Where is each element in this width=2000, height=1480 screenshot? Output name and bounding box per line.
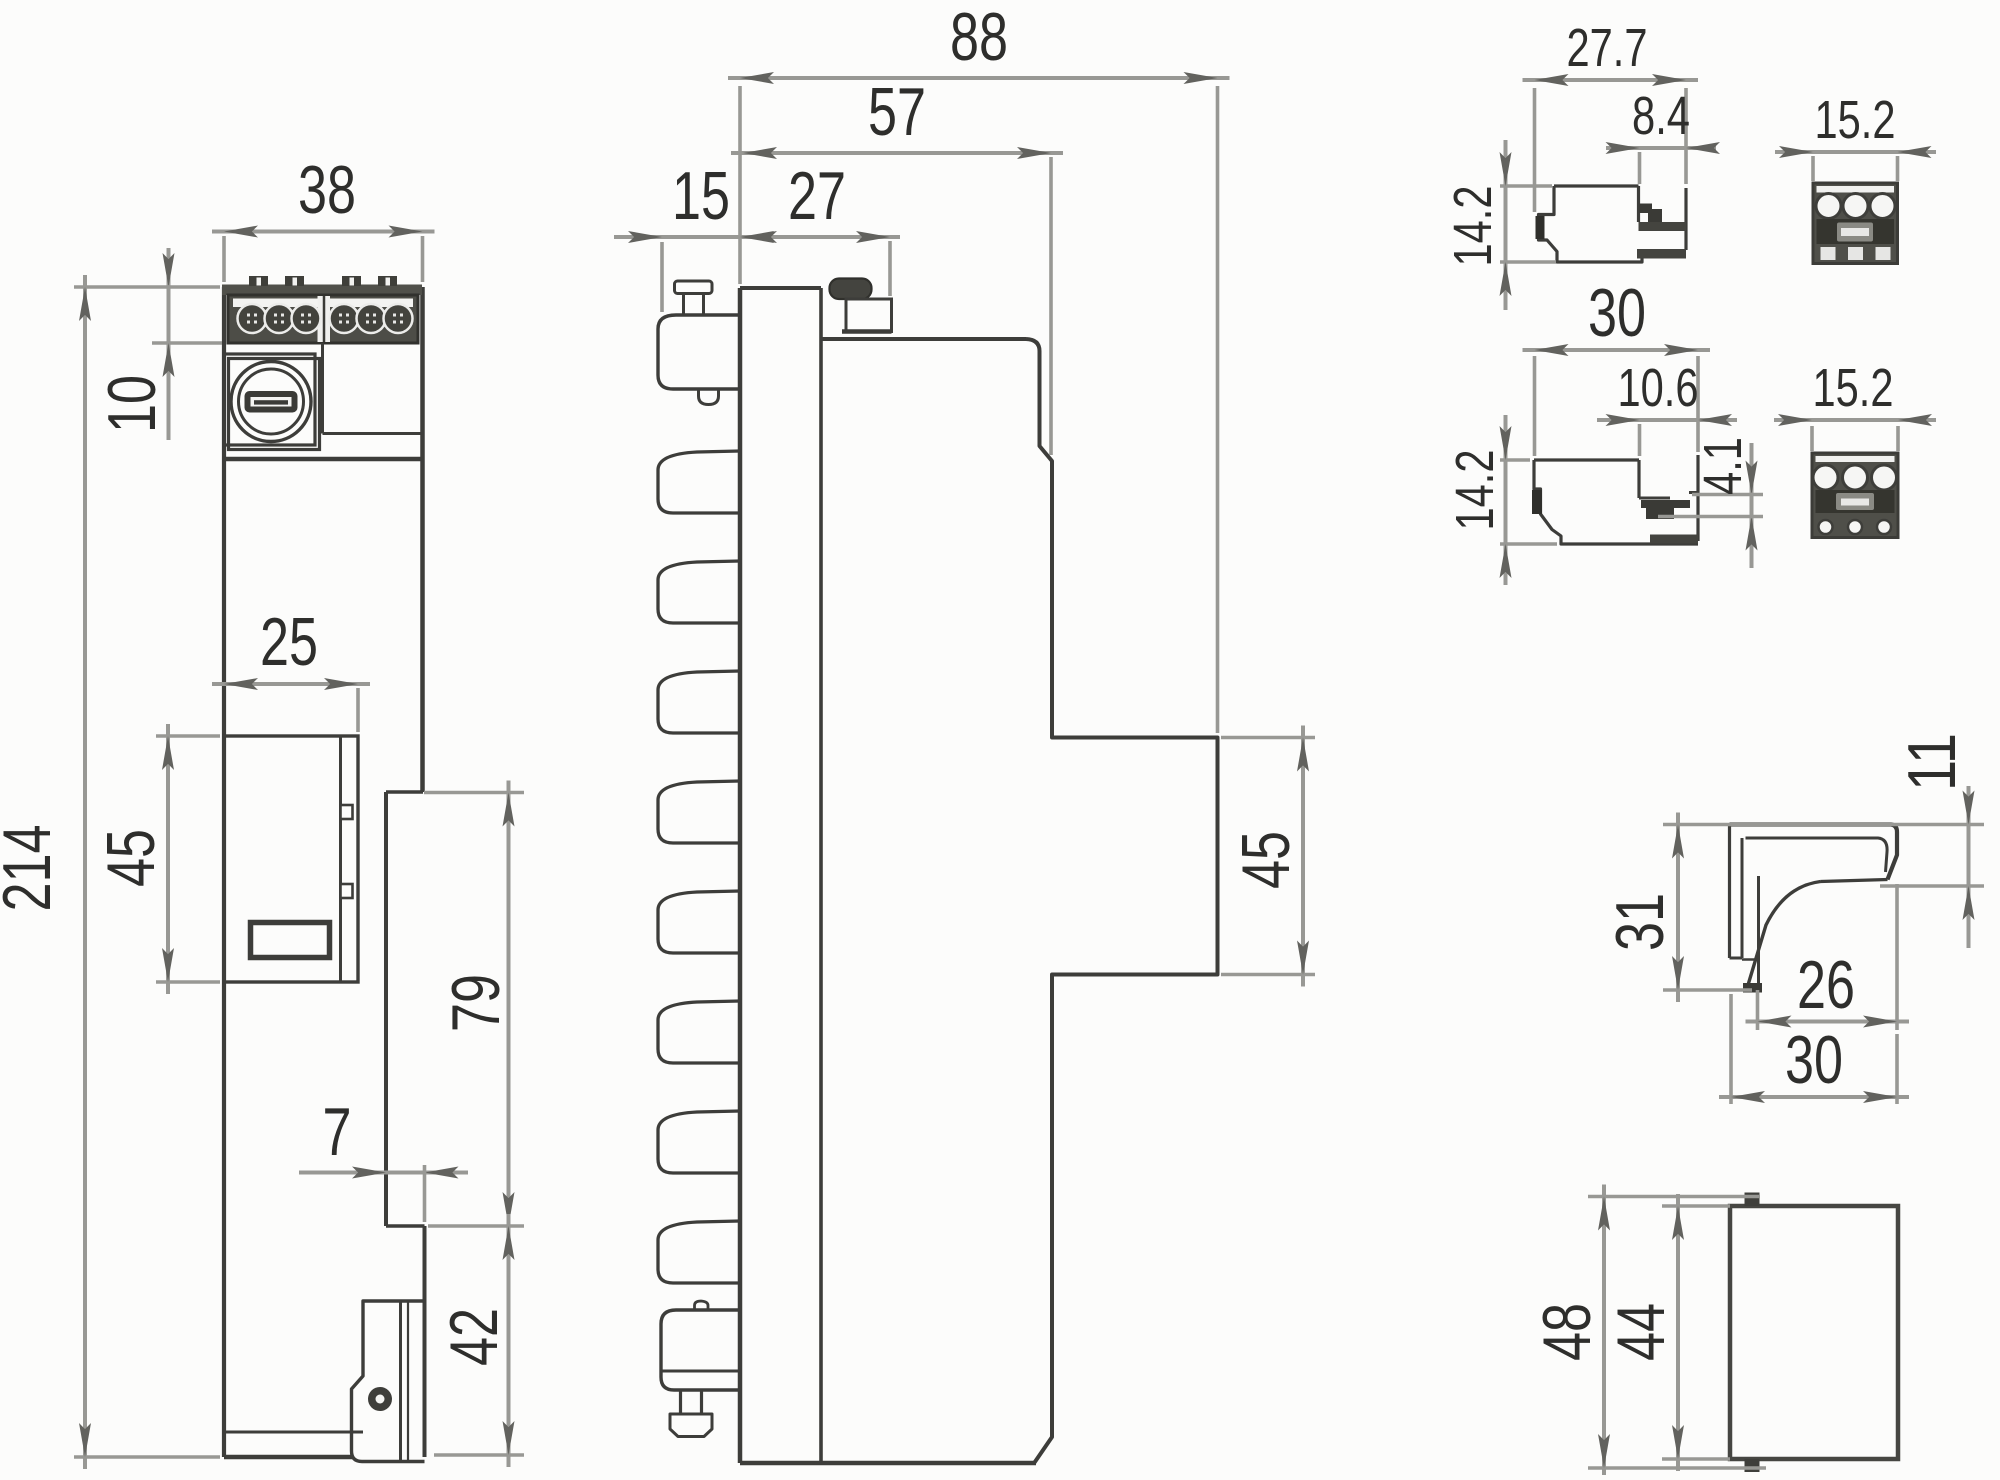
svg-text:79: 79 xyxy=(438,974,514,1032)
svg-text:45: 45 xyxy=(1228,831,1304,889)
svg-text:14.2: 14.2 xyxy=(1445,450,1505,531)
svg-text:25: 25 xyxy=(260,604,318,680)
svg-text:8.4: 8.4 xyxy=(1632,86,1690,146)
svg-text:38: 38 xyxy=(298,152,356,228)
svg-text:15: 15 xyxy=(672,158,730,234)
svg-text:44: 44 xyxy=(1603,1303,1679,1361)
svg-text:88: 88 xyxy=(950,0,1008,75)
svg-text:45: 45 xyxy=(93,829,169,887)
svg-text:57: 57 xyxy=(868,74,926,150)
svg-text:27: 27 xyxy=(788,158,846,234)
svg-text:15.2: 15.2 xyxy=(1813,358,1894,418)
svg-text:15.2: 15.2 xyxy=(1815,90,1896,150)
svg-text:42: 42 xyxy=(436,1308,512,1366)
svg-text:30: 30 xyxy=(1588,275,1646,351)
svg-text:48: 48 xyxy=(1529,1303,1605,1361)
svg-text:31: 31 xyxy=(1602,893,1678,951)
svg-text:214: 214 xyxy=(0,825,65,912)
svg-text:27.7: 27.7 xyxy=(1567,18,1648,78)
svg-text:10.6: 10.6 xyxy=(1618,358,1699,418)
svg-text:7: 7 xyxy=(323,1094,352,1170)
svg-text:11: 11 xyxy=(1894,733,1970,791)
svg-text:14.2: 14.2 xyxy=(1443,186,1503,267)
svg-text:10: 10 xyxy=(94,375,170,433)
svg-text:30: 30 xyxy=(1785,1022,1843,1098)
svg-text:4.1: 4.1 xyxy=(1693,437,1753,495)
svg-text:26: 26 xyxy=(1797,947,1855,1023)
